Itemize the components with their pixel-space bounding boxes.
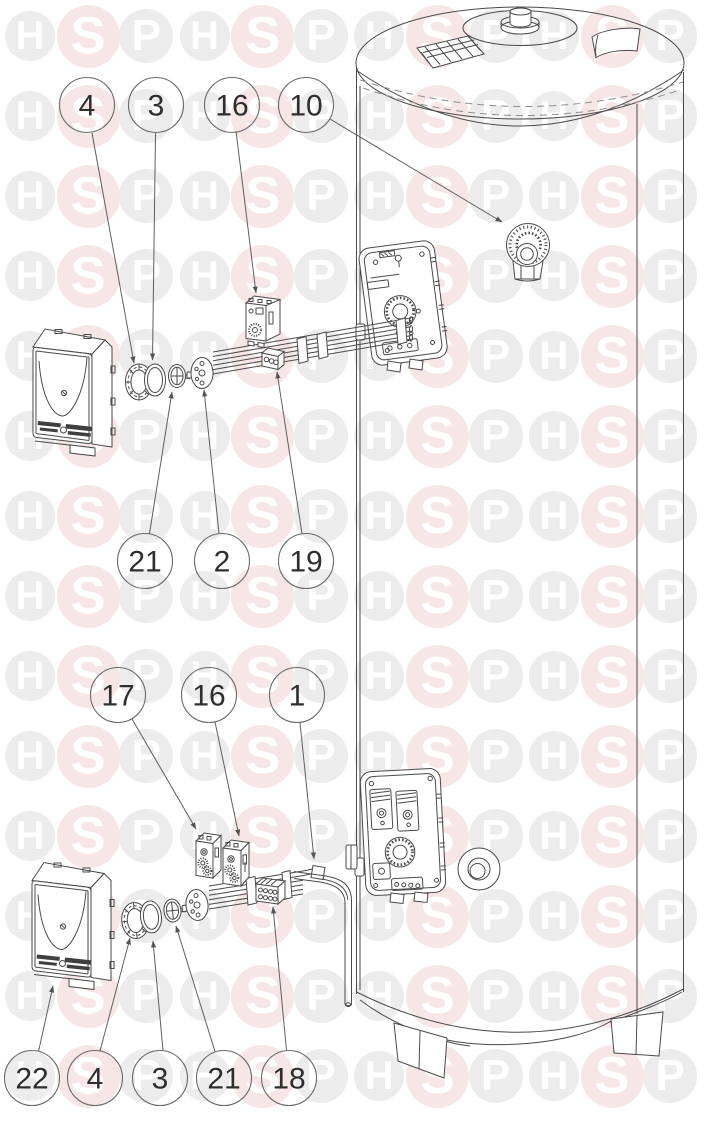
lower-thermostat-16: [223, 840, 249, 886]
svg-text:4: 4: [87, 1063, 104, 1096]
leader-17: [132, 719, 196, 829]
svg-text:21: 21: [128, 546, 161, 579]
leader-21-bottom: [176, 926, 215, 1052]
leader-10: [330, 119, 502, 222]
lower-thermostat-17: [196, 833, 221, 878]
svg-text:10: 10: [289, 90, 322, 123]
callout-4-bottom: 4: [68, 1051, 123, 1106]
svg-text:19: 19: [289, 546, 322, 579]
svg-text:3: 3: [148, 90, 165, 123]
lower-cover: [32, 863, 114, 990]
leader-22: [39, 986, 54, 1052]
svg-text:17: 17: [101, 680, 134, 713]
callout-17: 17: [91, 668, 146, 723]
top-label-left: [417, 36, 484, 68]
parts-diagram-page: HSPHSPHSPHSPHSPHSPHSPHSPHSPHSPHSPHSPHSPH…: [0, 0, 707, 1122]
terminal-block-19: [262, 348, 284, 370]
callout-3-bottom: 3: [133, 1051, 188, 1106]
leader-16-low: [215, 722, 239, 836]
leader-21-mid: [150, 392, 173, 534]
leader-3-top: [153, 133, 156, 360]
callout-3-top: 3: [129, 78, 184, 133]
svg-text:1: 1: [289, 680, 306, 713]
callout-21-mid: 21: [118, 534, 173, 589]
callout-22: 22: [5, 1051, 60, 1106]
top-fitting: [501, 8, 539, 34]
cylinder-boss-fitting: [458, 848, 500, 890]
svg-text:3: 3: [152, 1063, 169, 1096]
callout-16-low: 16: [182, 668, 237, 723]
top-label-right: [592, 28, 640, 57]
upper-junction-box: [356, 239, 450, 372]
svg-text:16: 16: [192, 680, 225, 713]
leader-4-top: [92, 133, 134, 363]
upper-cover: [33, 329, 115, 456]
leader-3-bottom: [153, 941, 163, 1051]
cylinder-base: [357, 989, 684, 1078]
callout-18: 18: [262, 1051, 317, 1106]
lower-seal-stack: [119, 888, 210, 939]
leader-1: [300, 723, 314, 860]
lower-junction-box: [346, 768, 447, 904]
leader-19: [277, 372, 302, 534]
leader-16-top: [236, 131, 256, 293]
callout-1: 1: [270, 668, 325, 723]
upper-thermostat-16: [246, 296, 280, 348]
svg-text:22: 22: [15, 1063, 48, 1096]
thermostat-dial: [507, 224, 550, 282]
leader-2: [204, 390, 219, 534]
exploded-parts-drawing: 4 3 16 10 21 2: [0, 0, 707, 1122]
svg-text:4: 4: [79, 90, 96, 123]
element-tip: [311, 866, 325, 880]
callout-19: 19: [279, 534, 334, 589]
callout-16-top: 16: [205, 78, 260, 133]
callout-21-bottom: 21: [197, 1051, 252, 1106]
svg-text:21: 21: [207, 1063, 240, 1096]
terminal-block-18: [256, 878, 285, 904]
callout-10: 10: [279, 78, 334, 133]
upper-seal-stack: [126, 358, 214, 401]
svg-text:16: 16: [215, 90, 248, 123]
leader-18: [273, 907, 287, 1051]
svg-text:2: 2: [214, 546, 231, 579]
svg-text:18: 18: [272, 1063, 305, 1096]
callout-2: 2: [195, 534, 250, 589]
cylinder-tank: [356, 7, 684, 1078]
bent-pipe: [294, 872, 352, 1007]
callout-4-top: 4: [60, 78, 115, 133]
